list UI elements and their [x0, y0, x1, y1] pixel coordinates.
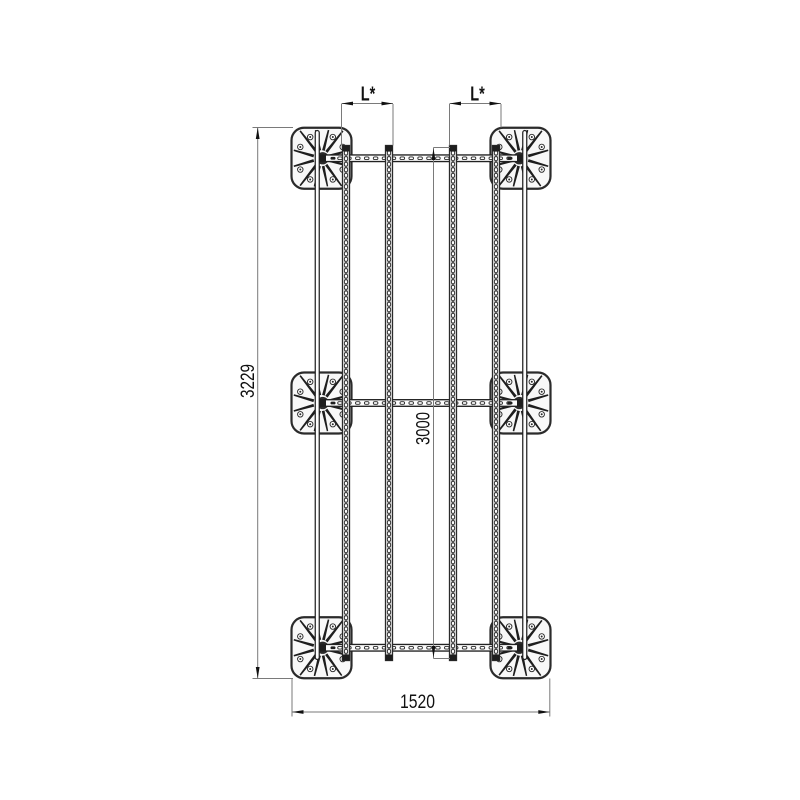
- svg-text:1520: 1520: [400, 692, 435, 713]
- svg-text:3229: 3229: [238, 364, 259, 398]
- svg-text:L*: L*: [470, 84, 485, 106]
- svg-text:L*: L*: [361, 84, 376, 106]
- svg-text:3000: 3000: [414, 412, 435, 445]
